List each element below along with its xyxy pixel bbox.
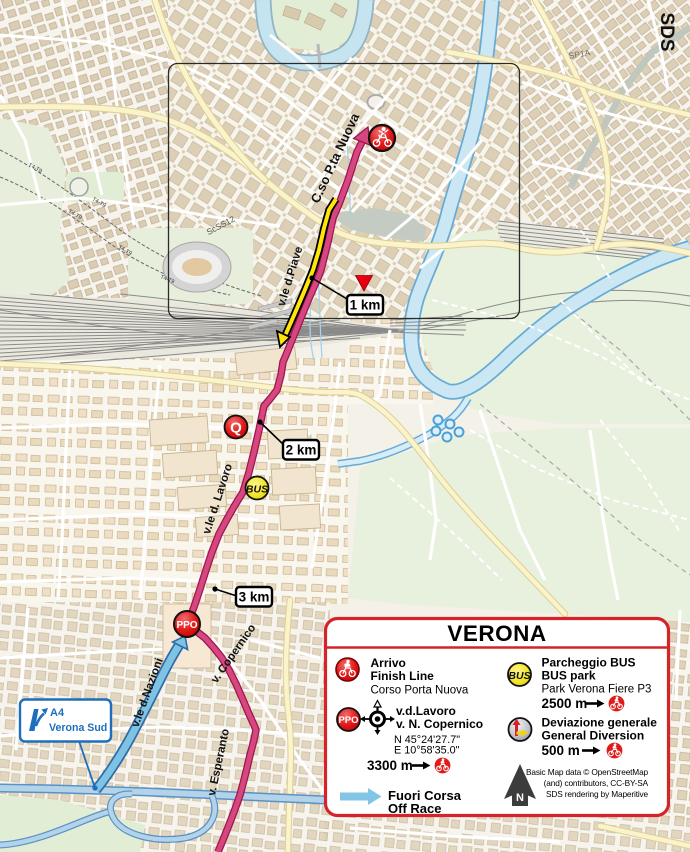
svg-text:500 m: 500 m <box>542 743 580 758</box>
svg-text:Finish Line: Finish Line <box>371 669 435 683</box>
svg-text:Parcheggio BUS: Parcheggio BUS <box>542 656 636 670</box>
svg-text:3 km: 3 km <box>239 590 270 605</box>
svg-text:BUS: BUS <box>508 670 530 682</box>
svg-text:General Diversion: General Diversion <box>542 729 645 743</box>
svg-text:BUS: BUS <box>246 484 268 496</box>
svg-text:PPO: PPO <box>338 715 358 726</box>
svg-text:PPO: PPO <box>176 620 197 631</box>
svg-text:2 km: 2 km <box>286 443 317 458</box>
svg-text:v. N. Copernico: v. N. Copernico <box>396 717 483 731</box>
svg-text:E 10°58'35.0": E 10°58'35.0" <box>394 745 460 757</box>
svg-text:Park Verona Fiere P3: Park Verona Fiere P3 <box>542 684 652 696</box>
svg-text:SDS rendering by Maperitive: SDS rendering by Maperitive <box>546 789 649 799</box>
svg-text:Off Race: Off Race <box>388 801 441 816</box>
svg-text:SDS: SDS <box>656 12 677 51</box>
svg-text:Verona Sud: Verona Sud <box>49 722 107 734</box>
svg-text:1 km: 1 km <box>350 298 381 313</box>
svg-text:BUS park: BUS park <box>542 669 596 683</box>
svg-text:N: N <box>516 792 524 804</box>
svg-text:Corso Porta Nuova: Corso Porta Nuova <box>371 685 469 697</box>
svg-text:2500 m: 2500 m <box>542 696 588 711</box>
svg-text:v.d.Lavoro: v.d.Lavoro <box>396 704 456 718</box>
svg-text:Arrivo: Arrivo <box>371 656 406 670</box>
svg-text:Q: Q <box>230 420 242 437</box>
svg-text:VERONA: VERONA <box>447 621 546 646</box>
svg-text:Basic Map data © OpenStreetMap: Basic Map data © OpenStreetMap <box>526 767 649 777</box>
svg-text:Deviazione generale: Deviazione generale <box>542 716 658 730</box>
svg-text:3300 m: 3300 m <box>367 758 413 773</box>
svg-text:(and) contributors, CC-BY-SA: (and) contributors, CC-BY-SA <box>544 778 649 788</box>
svg-text:A4: A4 <box>50 707 65 719</box>
